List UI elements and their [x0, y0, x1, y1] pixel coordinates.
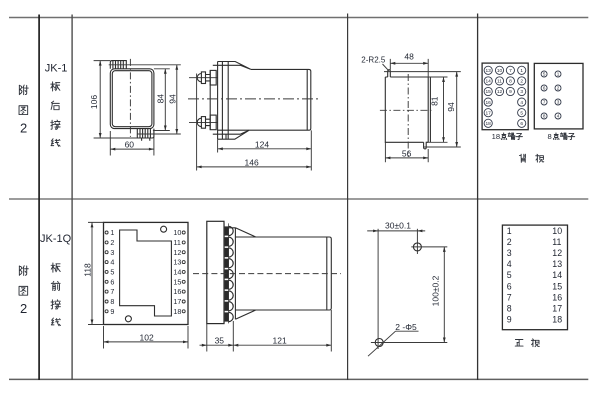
- svg-text:8: 8: [548, 132, 552, 141]
- svg-text:4: 4: [557, 114, 560, 119]
- svg-text:8: 8: [110, 297, 114, 306]
- svg-text:9: 9: [509, 89, 512, 95]
- svg-text:1: 1: [520, 68, 523, 74]
- svg-text:121: 121: [273, 336, 287, 346]
- svg-text:14: 14: [486, 79, 492, 85]
- svg-text:2: 2: [110, 238, 114, 247]
- svg-text:11: 11: [552, 237, 561, 247]
- svg-text:7: 7: [507, 292, 512, 302]
- svg-text:15: 15: [173, 277, 181, 286]
- svg-text:JK-1Q: JK-1Q: [40, 233, 72, 245]
- svg-text:2: 2: [507, 237, 512, 247]
- svg-text:1: 1: [110, 228, 114, 237]
- svg-text:5: 5: [507, 270, 512, 280]
- svg-text:13: 13: [486, 68, 492, 74]
- svg-text:1: 1: [507, 226, 512, 236]
- svg-text:2: 2: [20, 301, 27, 316]
- svg-text:56: 56: [402, 148, 412, 158]
- svg-text:6: 6: [520, 121, 523, 127]
- svg-text:124: 124: [255, 139, 269, 149]
- svg-text:146: 146: [245, 158, 259, 168]
- svg-text:14: 14: [173, 268, 181, 277]
- svg-text:2: 2: [520, 79, 523, 85]
- svg-text:3: 3: [507, 248, 512, 258]
- svg-text:18: 18: [552, 315, 562, 325]
- svg-text:10: 10: [173, 228, 181, 237]
- svg-text:84: 84: [156, 94, 166, 104]
- svg-text:102: 102: [140, 332, 154, 342]
- svg-text:81: 81: [429, 96, 439, 106]
- svg-text:16: 16: [552, 292, 562, 302]
- svg-text:60: 60: [125, 140, 135, 150]
- svg-text:106: 106: [89, 95, 99, 109]
- svg-text:14: 14: [552, 270, 562, 280]
- svg-text:6: 6: [543, 86, 546, 91]
- svg-text:8: 8: [509, 79, 512, 85]
- svg-text:5: 5: [543, 72, 546, 77]
- svg-text:JK-1: JK-1: [45, 62, 68, 74]
- svg-text:6: 6: [507, 281, 512, 291]
- svg-text:12: 12: [173, 248, 181, 257]
- svg-text:118: 118: [82, 263, 92, 277]
- svg-text:8: 8: [507, 304, 512, 314]
- svg-text:2: 2: [557, 86, 560, 91]
- svg-text:5: 5: [110, 268, 114, 277]
- svg-text:8: 8: [543, 114, 546, 119]
- svg-text:1: 1: [557, 72, 560, 77]
- svg-text:16: 16: [173, 287, 181, 296]
- svg-text:17: 17: [552, 304, 562, 314]
- svg-text:30±0.1: 30±0.1: [385, 220, 411, 230]
- svg-text:4: 4: [507, 259, 512, 269]
- svg-text:12: 12: [552, 248, 562, 258]
- svg-text:94: 94: [167, 94, 177, 104]
- svg-text:7: 7: [509, 68, 512, 74]
- svg-text:12: 12: [497, 89, 503, 95]
- svg-text:48: 48: [404, 52, 414, 62]
- svg-text:9: 9: [110, 307, 114, 316]
- svg-text:35: 35: [215, 336, 225, 346]
- svg-text:2 -Φ5: 2 -Φ5: [395, 322, 417, 332]
- svg-text:2-R2.5: 2-R2.5: [361, 56, 386, 65]
- svg-text:7: 7: [543, 100, 546, 105]
- svg-text:4: 4: [520, 100, 523, 106]
- svg-text:10: 10: [497, 68, 503, 74]
- svg-text:6: 6: [110, 277, 114, 286]
- svg-text:3: 3: [110, 248, 114, 257]
- svg-text:18: 18: [492, 132, 500, 141]
- svg-text:5: 5: [520, 110, 523, 116]
- svg-text:15: 15: [486, 89, 492, 95]
- svg-text:11: 11: [497, 79, 502, 85]
- svg-text:7: 7: [110, 287, 114, 296]
- svg-text:11: 11: [173, 238, 180, 247]
- svg-text:18: 18: [486, 121, 492, 127]
- svg-text:10: 10: [552, 226, 562, 236]
- svg-text:17: 17: [486, 110, 492, 116]
- svg-text:13: 13: [173, 258, 181, 267]
- svg-text:18: 18: [173, 307, 181, 316]
- svg-text:15: 15: [552, 281, 562, 291]
- svg-text:94: 94: [446, 102, 456, 112]
- svg-text:17: 17: [173, 297, 181, 306]
- svg-text:13: 13: [552, 259, 562, 269]
- svg-text:2: 2: [20, 121, 27, 136]
- svg-text:4: 4: [110, 258, 114, 267]
- svg-text:3: 3: [520, 89, 523, 95]
- svg-text:16: 16: [486, 100, 492, 106]
- svg-text:100±0.2: 100±0.2: [430, 275, 440, 306]
- svg-text:3: 3: [557, 100, 560, 105]
- svg-text:9: 9: [507, 315, 512, 325]
